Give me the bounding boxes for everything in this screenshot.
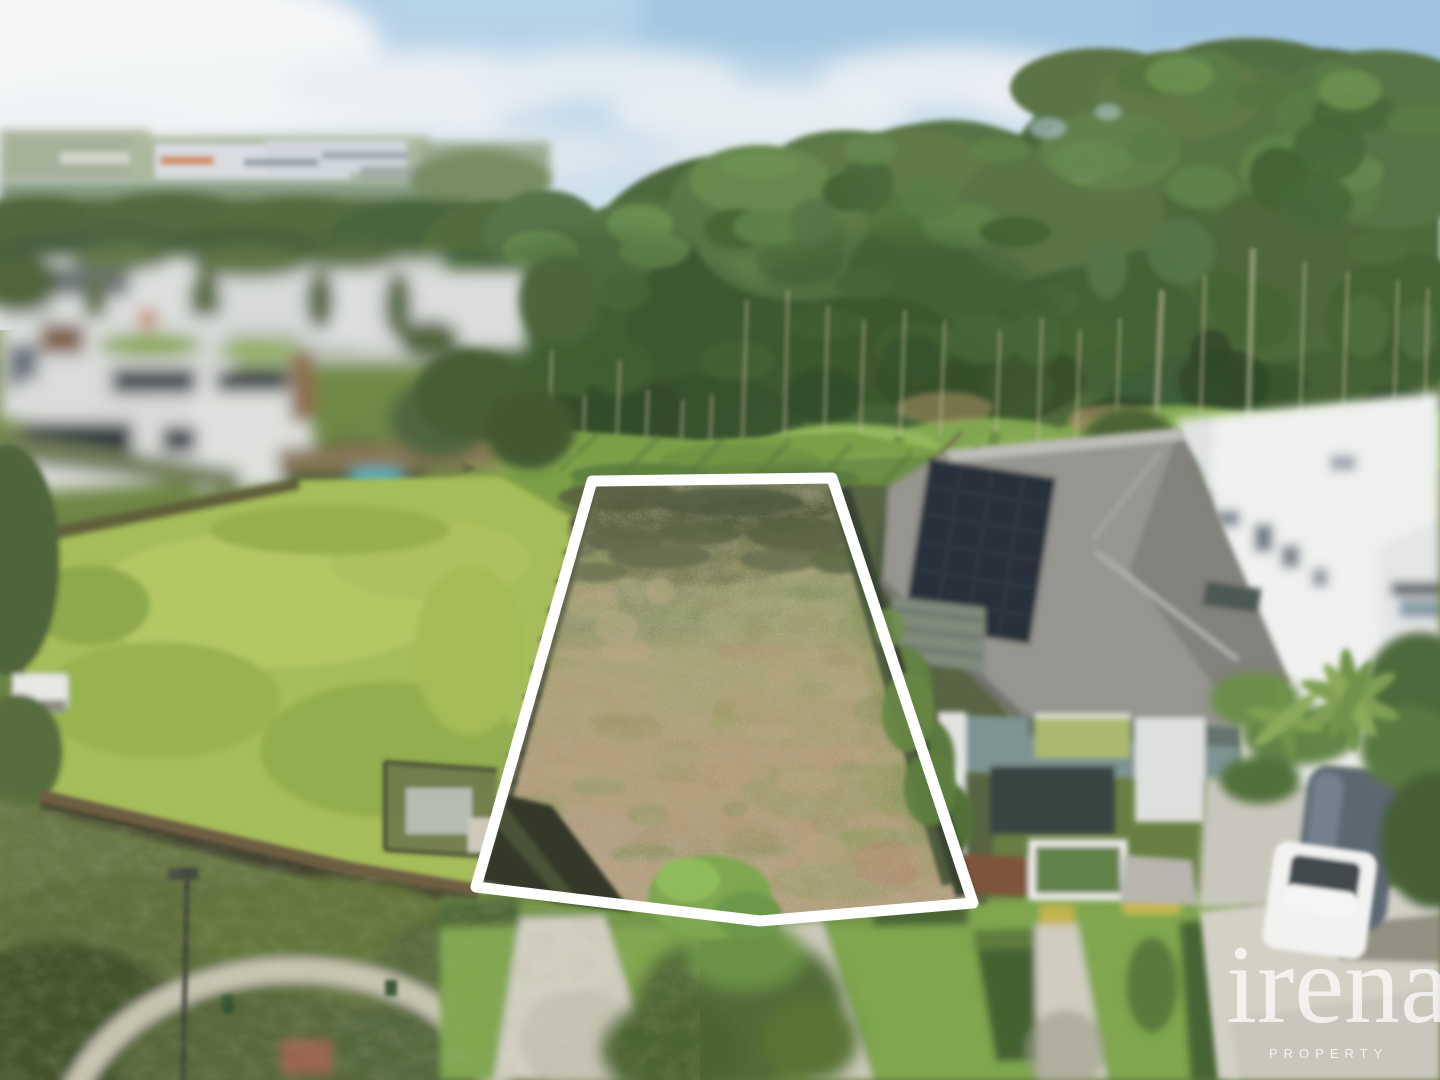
svg-text:irena: irena (1226, 923, 1440, 1047)
svg-text:PROPERTY: PROPERTY (1269, 1046, 1388, 1061)
